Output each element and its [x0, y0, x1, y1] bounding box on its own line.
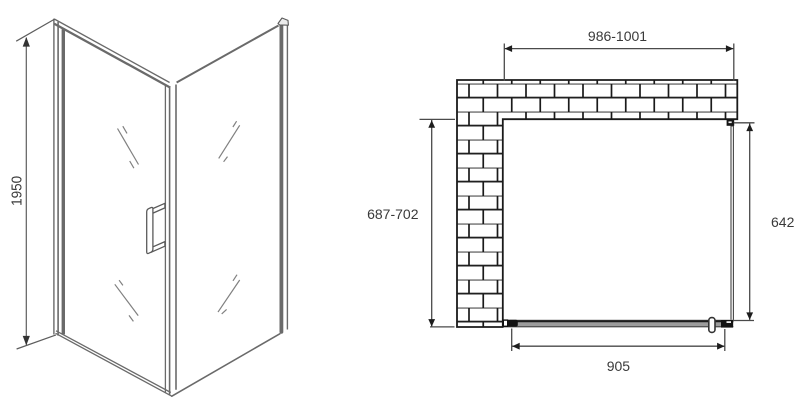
svg-text:905: 905: [607, 358, 631, 374]
svg-text:986-1001: 986-1001: [588, 28, 647, 44]
svg-text:1950: 1950: [9, 176, 26, 206]
svg-text:642: 642: [771, 214, 795, 230]
svg-text:687-702: 687-702: [367, 206, 419, 222]
